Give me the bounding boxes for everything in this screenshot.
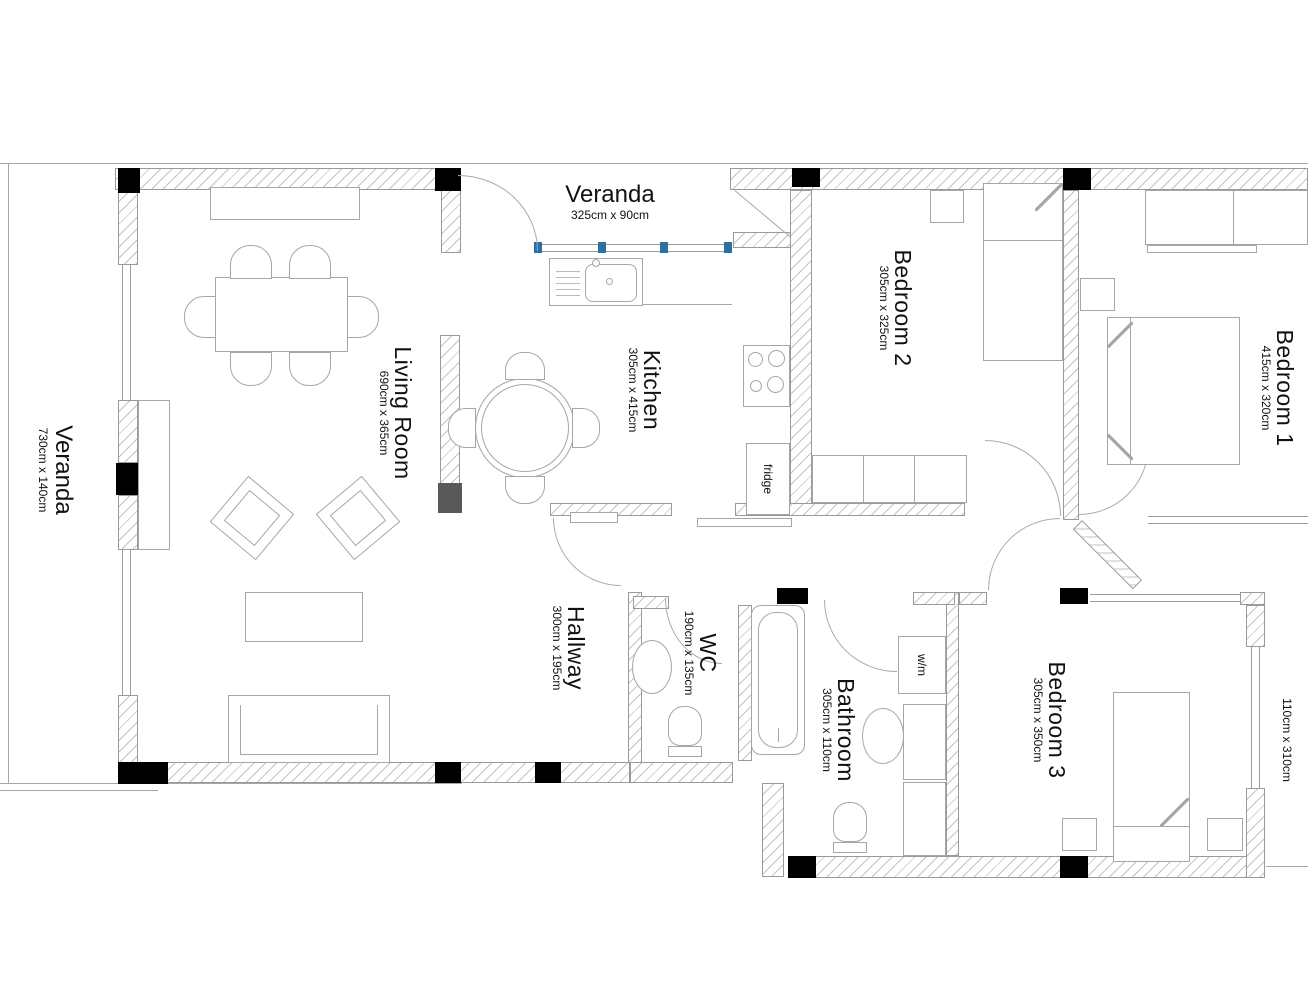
window-bedroom3-top <box>1090 594 1240 602</box>
bed-bedroom2-pillow-line <box>983 240 1063 241</box>
wall-bedroom3-top-right <box>1240 592 1265 605</box>
wall-bottom-wc <box>630 762 733 783</box>
kitchen-chair <box>505 352 545 380</box>
wardrobe-lip <box>1147 245 1257 253</box>
dining-chair <box>230 245 272 279</box>
sink-drainer <box>556 266 580 300</box>
wall-wc-tub-divider <box>738 605 752 761</box>
room-name: Hallway <box>564 606 588 690</box>
bed-bedroom3 <box>1113 692 1190 862</box>
room-label-bedroom3: Bedroom 3 305cm x 350cm <box>1027 610 1071 830</box>
wall-left-2 <box>118 400 138 463</box>
room-name: Living Room <box>391 346 415 479</box>
window-kitchen <box>534 244 732 252</box>
room-name: Kitchen <box>640 350 664 430</box>
room-label-bedroom2: Bedroom 2 305cm x 325cm <box>873 198 917 418</box>
window-bedroom1-bottom <box>1148 516 1308 524</box>
wall-bedroom3-right-bottom <box>1246 788 1265 878</box>
veranda-left-edge <box>8 163 9 783</box>
column-bottom-left <box>118 762 168 784</box>
washing-machine: w/m <box>898 636 946 694</box>
room-name: Veranda <box>50 425 76 514</box>
wall-bedroom3-top-left <box>959 592 987 605</box>
room-name: Veranda <box>565 182 654 208</box>
room-name: Bedroom 2 <box>891 249 915 366</box>
coffee-table <box>245 592 363 642</box>
wall-corridor-diagonal <box>1073 520 1142 589</box>
bathroom-cabinet <box>903 704 946 780</box>
room-label-side-area: 110cm x 310cm <box>1272 630 1300 850</box>
window-left-1 <box>122 265 131 400</box>
sink-faucet <box>606 278 613 285</box>
wall-bedroom3-right-top <box>1246 605 1265 647</box>
door-leaf-bedroom2-entry <box>734 190 790 237</box>
column-top-bedroom1 <box>1063 168 1091 190</box>
bathtub-drain <box>778 728 779 742</box>
bed-bedroom3-fold <box>1160 798 1189 827</box>
column-top-bedroom2 <box>792 168 820 187</box>
wall-bathroom-right <box>946 592 959 856</box>
wc-sink <box>632 640 672 694</box>
window-marker-2 <box>598 242 606 253</box>
wall-left-1 <box>118 190 138 265</box>
veranda-bottom-edge2 <box>0 790 158 791</box>
nightstand <box>1080 278 1115 311</box>
room-label-living-room: Living Room 690cm x 365cm <box>373 303 417 523</box>
wardrobe-divider <box>1233 190 1234 245</box>
kitchen-chair <box>505 476 545 504</box>
shelf-corridor <box>697 518 792 527</box>
room-label-veranda-top: Veranda 325cm x 90cm <box>530 182 690 224</box>
door-arc-bedroom3 <box>988 518 1060 590</box>
column-bedroom3-top <box>1060 588 1088 604</box>
room-dims: 300cm x 195cm <box>548 606 564 691</box>
room-label-bedroom1: Bedroom 1 415cm x 320cm <box>1255 278 1299 498</box>
side-veranda-edge <box>1266 866 1308 867</box>
bed-bedroom1-pillow <box>1107 322 1133 348</box>
floor-plan: fridge w/m Veranda 325cm x 90cm Ve <box>0 0 1308 981</box>
kitchen-chair <box>572 408 600 448</box>
room-dims: 325cm x 90cm <box>571 208 649 224</box>
wall-bathroom-left-low <box>762 783 784 877</box>
bathroom-toilet-tank <box>833 842 867 853</box>
window-marker-4 <box>724 242 732 253</box>
column-bottom-hall-left <box>435 762 461 783</box>
closet-divider <box>863 455 864 503</box>
wall-bathroom-top-right <box>913 592 955 605</box>
dining-chair <box>184 296 216 338</box>
window-bedroom3-right <box>1251 647 1260 788</box>
plot-edge-top <box>0 163 1308 164</box>
wall-wc-top <box>633 596 669 609</box>
column-bath-top <box>777 588 808 604</box>
column-top-left <box>118 168 140 193</box>
column-bottom-hall-right <box>535 762 561 783</box>
dining-chair <box>289 352 331 386</box>
stove-burner <box>750 380 762 392</box>
room-dims: 305cm x 110cm <box>818 688 834 772</box>
room-dims: 415cm x 320cm <box>1257 346 1273 431</box>
fridge: fridge <box>746 443 790 515</box>
wardrobe-bedroom1 <box>1145 190 1308 245</box>
dining-table <box>215 277 348 352</box>
pillar-living-kitchen <box>438 483 462 513</box>
room-dims: 110cm x 310cm <box>1278 698 1294 782</box>
radiator-cabinet <box>138 400 170 550</box>
bathroom-sink <box>862 708 904 764</box>
room-dims: 730cm x 140cm <box>34 428 50 513</box>
kitchen-table-inner <box>481 384 569 472</box>
nightstand <box>1207 818 1243 851</box>
sideboard <box>210 187 360 220</box>
bed-bedroom1-pillow <box>1107 434 1133 460</box>
stove-burner <box>768 350 785 367</box>
room-label-wc: WC 190cm x 135cm <box>678 543 722 763</box>
door-arc-bedroom2 <box>985 440 1061 516</box>
room-name: Bedroom 1 <box>1273 329 1297 446</box>
room-name: Bedroom 3 <box>1045 661 1069 778</box>
closet-bedroom2 <box>812 455 967 503</box>
room-dims: 305cm x 415cm <box>624 348 640 433</box>
column-left-mid <box>116 463 140 495</box>
washing-machine-label: w/m <box>915 654 929 676</box>
window-left-2 <box>122 550 131 695</box>
room-dims: 305cm x 325cm <box>875 266 891 351</box>
wall-veranda-corner <box>733 232 791 248</box>
room-name: WC <box>696 633 720 672</box>
sofa-seat <box>240 705 378 755</box>
column-bath-bottom <box>788 856 816 878</box>
wall-top-bedroom1 <box>1090 168 1308 190</box>
dining-chair <box>230 352 272 386</box>
room-label-kitchen: Kitchen 305cm x 415cm <box>622 280 666 500</box>
stove-burner <box>748 352 763 367</box>
room-label-hallway: Hallway 300cm x 195cm <box>546 538 590 758</box>
column-bedroom3-bottom <box>1060 856 1088 878</box>
wall-left-4 <box>118 695 138 763</box>
room-dims: 190cm x 135cm <box>680 611 696 696</box>
wall-left-3 <box>118 495 138 550</box>
kitchen-chair <box>448 408 476 448</box>
dining-chair <box>289 245 331 279</box>
fridge-label: fridge <box>761 464 775 494</box>
room-name: Bathroom <box>834 678 858 782</box>
bathroom-cabinet <box>903 782 946 856</box>
room-label-bathroom: Bathroom 305cm x 110cm <box>816 620 860 840</box>
closet-divider <box>914 455 915 503</box>
wall-bottom-bath-bed3 <box>790 856 1265 878</box>
room-label-veranda-left: Veranda 730cm x 140cm <box>33 360 77 580</box>
room-dims: 305cm x 350cm <box>1029 678 1045 763</box>
wall-bedroom1-2-divider <box>1063 190 1079 520</box>
sink-faucet <box>592 259 600 267</box>
wall-kitchen-right <box>790 190 812 515</box>
door-arc-entrance <box>458 175 538 251</box>
stove-burner <box>767 376 784 393</box>
nightstand <box>930 190 964 223</box>
bed-bedroom2-fold <box>1035 183 1063 211</box>
window-marker-3 <box>660 242 668 253</box>
room-dims: 690cm x 365cm <box>375 371 391 456</box>
veranda-bottom-edge <box>0 783 462 784</box>
